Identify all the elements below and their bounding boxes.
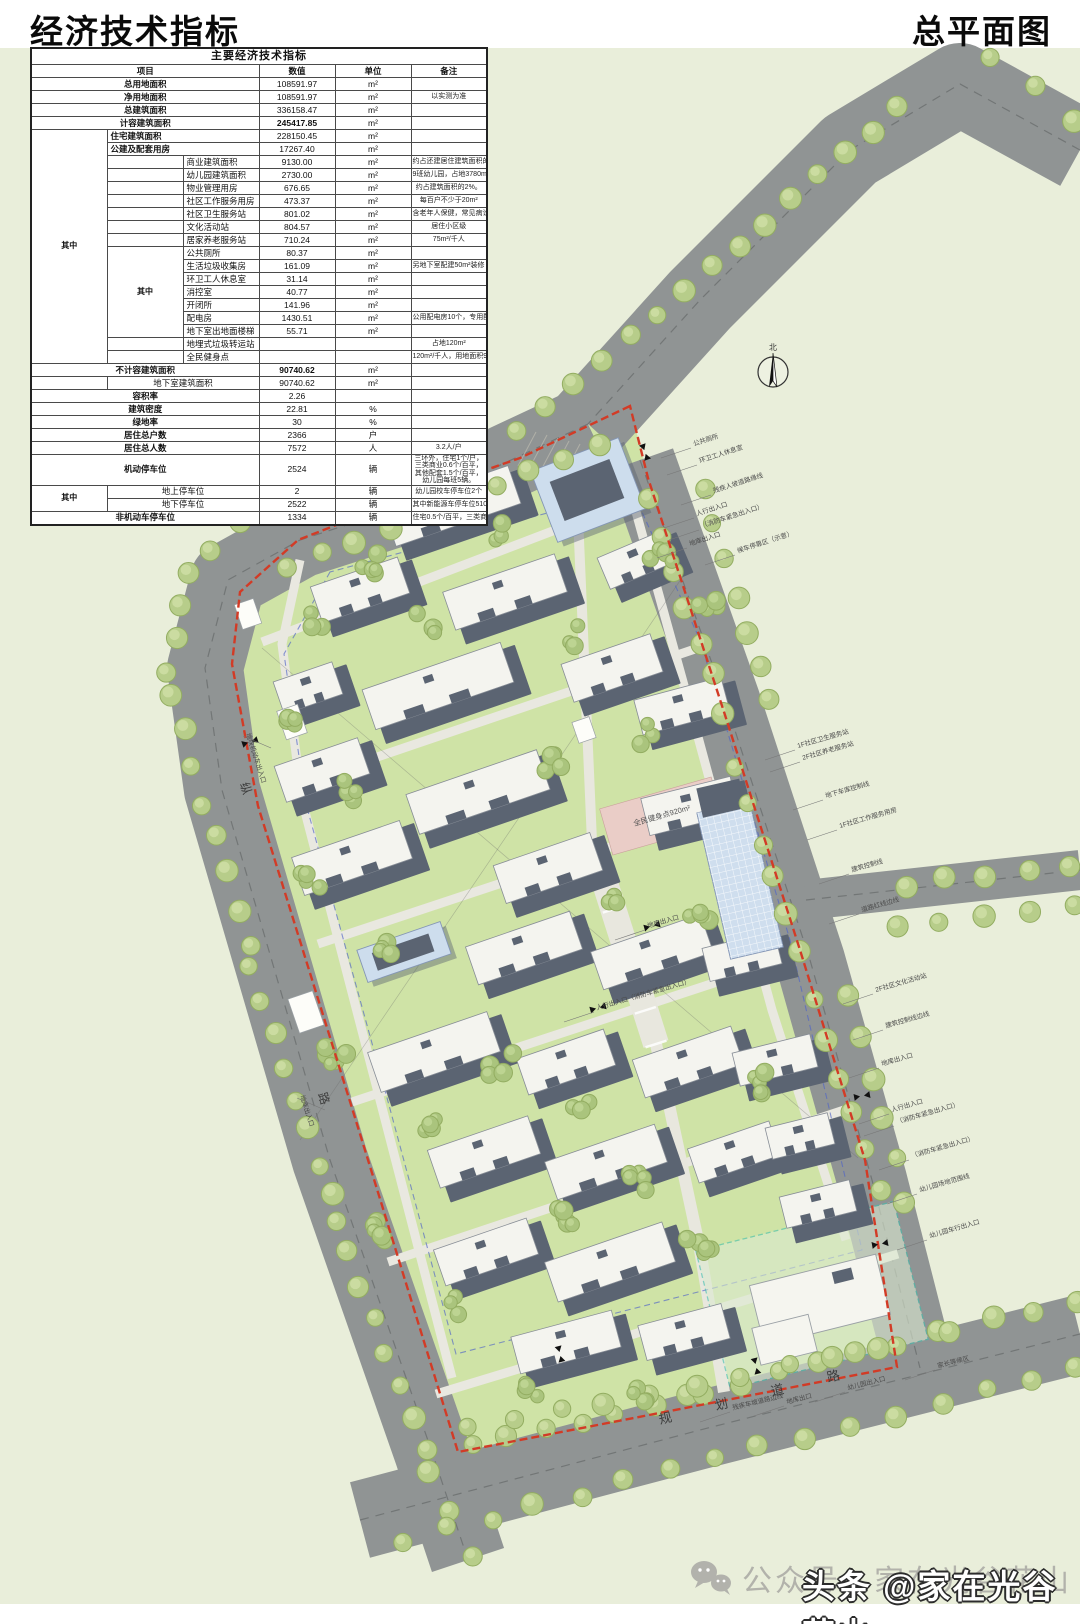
item-unit: m² bbox=[335, 312, 411, 325]
item-value: 2730.00 bbox=[259, 169, 335, 182]
item-value: 804.57 bbox=[259, 221, 335, 234]
table-cell bbox=[107, 169, 183, 182]
table-cell bbox=[107, 195, 183, 208]
item-remark bbox=[411, 104, 487, 117]
item-unit: 辆 bbox=[335, 485, 411, 498]
item-remark: 9班幼儿园，占地3780m² bbox=[411, 169, 487, 182]
among-label: 其中 bbox=[107, 247, 183, 338]
item-remark: 以实测为准 bbox=[411, 91, 487, 104]
item-value: 1334 bbox=[259, 511, 335, 525]
item-remark: 3.2人/户 bbox=[411, 442, 487, 455]
item-remark bbox=[411, 364, 487, 377]
item-name: 消控室 bbox=[183, 286, 259, 299]
item-name: 总用地面积 bbox=[31, 78, 259, 91]
col-header-unit: 单位 bbox=[335, 65, 411, 78]
item-name: 绿地率 bbox=[31, 416, 259, 429]
item-name: 公建及配套用房 bbox=[107, 143, 259, 156]
item-value: 1430.51 bbox=[259, 312, 335, 325]
item-remark: 占地120m² bbox=[411, 338, 487, 351]
item-name: 地下室建筑面积 bbox=[107, 377, 259, 390]
item-value: 336158.47 bbox=[259, 104, 335, 117]
watermark-overlay-text: 头条 @家在光谷花山 bbox=[802, 1560, 1080, 1624]
item-unit: 户 bbox=[335, 429, 411, 442]
item-remark: 每百户不少于20m² bbox=[411, 195, 487, 208]
table-cell bbox=[107, 234, 183, 247]
item-remark bbox=[411, 247, 487, 260]
item-name: 开闭所 bbox=[183, 299, 259, 312]
item-value bbox=[259, 351, 335, 364]
item-unit: m² bbox=[335, 234, 411, 247]
item-name: 配电房 bbox=[183, 312, 259, 325]
item-name: 机动停车位 bbox=[31, 455, 259, 486]
item-remark bbox=[411, 130, 487, 143]
table-row: 总用地面积108591.97m² bbox=[31, 78, 487, 91]
page-title-left: 经济技术指标 bbox=[30, 5, 240, 53]
item-remark bbox=[411, 429, 487, 442]
item-unit: m² bbox=[335, 325, 411, 338]
indicator-table: 主要经济技术指标项目数值单位备注总用地面积108591.97m²净用地面积108… bbox=[30, 47, 488, 526]
item-unit: m² bbox=[335, 208, 411, 221]
item-unit: m² bbox=[335, 273, 411, 286]
table-cell bbox=[107, 208, 183, 221]
table-row: 容积率2.26 bbox=[31, 390, 487, 403]
item-name: 生活垃圾收集房 bbox=[183, 260, 259, 273]
item-name: 全民健身点 bbox=[183, 351, 259, 364]
item-value: 2366 bbox=[259, 429, 335, 442]
item-unit bbox=[335, 338, 411, 351]
item-value: 7572 bbox=[259, 442, 335, 455]
table-cell bbox=[107, 182, 183, 195]
item-remark: 住宅0.5个/百平，三类商业1.5个/百平，其他配套1.5个/百平 bbox=[411, 511, 487, 525]
item-value: 710.24 bbox=[259, 234, 335, 247]
item-value: 108591.97 bbox=[259, 91, 335, 104]
item-remark bbox=[411, 416, 487, 429]
item-unit: % bbox=[335, 416, 411, 429]
item-unit: % bbox=[335, 403, 411, 416]
item-remark bbox=[411, 390, 487, 403]
item-unit: m² bbox=[335, 247, 411, 260]
item-unit: 辆 bbox=[335, 498, 411, 511]
table-row: 其中地上停车位2辆幼儿园校车停车位2个 bbox=[31, 485, 487, 498]
table-row: 非机动车停车位1334辆住宅0.5个/百平，三类商业1.5个/百平，其他配套1.… bbox=[31, 511, 487, 525]
table-cell bbox=[107, 338, 183, 351]
item-name: 非机动车停车位 bbox=[31, 511, 259, 525]
item-value: 2 bbox=[259, 485, 335, 498]
item-name: 居住总人数 bbox=[31, 442, 259, 455]
item-value: 80.37 bbox=[259, 247, 335, 260]
item-unit: m² bbox=[335, 143, 411, 156]
item-remark: 另地下室配建50m²装修（大件）垃圾收集房 bbox=[411, 260, 487, 273]
item-remark bbox=[411, 143, 487, 156]
item-value: 22.81 bbox=[259, 403, 335, 416]
item-value bbox=[259, 338, 335, 351]
item-name: 容积率 bbox=[31, 390, 259, 403]
item-name: 社区卫生服务站 bbox=[183, 208, 259, 221]
item-value: 17267.40 bbox=[259, 143, 335, 156]
item-name: 居住总户数 bbox=[31, 429, 259, 442]
item-value: 55.71 bbox=[259, 325, 335, 338]
item-unit: m² bbox=[335, 156, 411, 169]
wechat-icon bbox=[690, 1560, 734, 1596]
item-name: 住宅建筑面积 bbox=[107, 130, 259, 143]
item-unit: m² bbox=[335, 195, 411, 208]
item-unit: m² bbox=[335, 91, 411, 104]
item-name: 公共厕所 bbox=[183, 247, 259, 260]
item-remark bbox=[411, 325, 487, 338]
item-remark: 公用配电房10个，专用配电房2个 bbox=[411, 312, 487, 325]
item-unit: m² bbox=[335, 377, 411, 390]
col-header-value: 数值 bbox=[259, 65, 335, 78]
among-label: 其中 bbox=[31, 485, 107, 511]
table-row: 建筑密度22.81% bbox=[31, 403, 487, 416]
item-remark bbox=[411, 299, 487, 312]
table-row: 绿地率30% bbox=[31, 416, 487, 429]
item-unit: m² bbox=[335, 299, 411, 312]
col-header-remark: 备注 bbox=[411, 65, 487, 78]
item-unit bbox=[335, 351, 411, 364]
item-unit: m² bbox=[335, 169, 411, 182]
item-unit: m² bbox=[335, 260, 411, 273]
item-remark bbox=[411, 377, 487, 390]
item-remark bbox=[411, 273, 487, 286]
table-row: 不计容建筑面积90740.62m² bbox=[31, 364, 487, 377]
item-name: 居家养老服务站 bbox=[183, 234, 259, 247]
item-value: 90740.62 bbox=[259, 364, 335, 377]
item-name: 地下停车位 bbox=[107, 498, 259, 511]
col-header-item: 项目 bbox=[31, 65, 259, 78]
table-row: 其中住宅建筑面积228150.45m² bbox=[31, 130, 487, 143]
item-name: 地上停车位 bbox=[107, 485, 259, 498]
table-row: 居住总人数7572人3.2人/户 bbox=[31, 442, 487, 455]
item-unit: m² bbox=[335, 130, 411, 143]
item-remark bbox=[411, 286, 487, 299]
table-row: 计容建筑面积245417.85m² bbox=[31, 117, 487, 130]
item-remark: 含老年人保健，常见病诊疗，残疾人康复中心 bbox=[411, 208, 487, 221]
item-value: 473.37 bbox=[259, 195, 335, 208]
item-value: 30 bbox=[259, 416, 335, 429]
item-remark: 幼儿园校车停车位2个 bbox=[411, 485, 487, 498]
item-value: 801.02 bbox=[259, 208, 335, 221]
table-cell bbox=[107, 221, 183, 234]
item-remark: 120m²/千人，用地面积920m² bbox=[411, 351, 487, 364]
item-name: 环卫工人休息室 bbox=[183, 273, 259, 286]
item-remark: 约占还建居住建筑面积的4%，含2250m²超市型集贸市场 bbox=[411, 156, 487, 169]
among-label: 其中 bbox=[31, 130, 107, 364]
table-cell bbox=[107, 351, 183, 364]
item-remark bbox=[411, 403, 487, 416]
item-name: 不计容建筑面积 bbox=[31, 364, 259, 377]
svg-text:北: 北 bbox=[769, 343, 777, 352]
item-remark: 其中新能源车停车位510个 bbox=[411, 498, 487, 511]
table-cell bbox=[107, 156, 183, 169]
item-value: 31.14 bbox=[259, 273, 335, 286]
item-value: 2522 bbox=[259, 498, 335, 511]
table-row: 总建筑面积336158.47m² bbox=[31, 104, 487, 117]
item-value: 2.26 bbox=[259, 390, 335, 403]
item-value: 2524 bbox=[259, 455, 335, 486]
item-remark: 约占建筑面积的2%。 bbox=[411, 182, 487, 195]
item-remark bbox=[411, 78, 487, 91]
item-remark: 75m²/千人 bbox=[411, 234, 487, 247]
item-name: 地埋式垃圾转运站 bbox=[183, 338, 259, 351]
table-row: 机动停车位2524辆三环外，住宅1个/户，三类商业0.6个/百平，其他配套1.5… bbox=[31, 455, 487, 486]
item-unit: 辆 bbox=[335, 511, 411, 525]
item-value: 108591.97 bbox=[259, 78, 335, 91]
table-cell bbox=[31, 377, 107, 390]
item-name: 建筑密度 bbox=[31, 403, 259, 416]
item-unit: 人 bbox=[335, 442, 411, 455]
table-row: 地下室建筑面积90740.62m² bbox=[31, 377, 487, 390]
item-unit bbox=[335, 390, 411, 403]
item-unit: m² bbox=[335, 117, 411, 130]
item-name: 计容建筑面积 bbox=[31, 117, 259, 130]
item-remark: 三环外，住宅1个/户，三类商业0.6个/百平，其他配套1.5个/百平，幼儿园每班… bbox=[411, 455, 487, 486]
item-name: 商业建筑面积 bbox=[183, 156, 259, 169]
item-name: 文化活动站 bbox=[183, 221, 259, 234]
item-name: 地下室出地面楼梯 bbox=[183, 325, 259, 338]
item-unit: 辆 bbox=[335, 455, 411, 486]
item-remark bbox=[411, 117, 487, 130]
item-value: 245417.85 bbox=[259, 117, 335, 130]
item-value: 228150.45 bbox=[259, 130, 335, 143]
item-value: 141.96 bbox=[259, 299, 335, 312]
item-name: 物业管理用房 bbox=[183, 182, 259, 195]
table-row: 居住总户数2366户 bbox=[31, 429, 487, 442]
item-name: 净用地面积 bbox=[31, 91, 259, 104]
table-row: 净用地面积108591.97m²以实测为准 bbox=[31, 91, 487, 104]
item-value: 9130.00 bbox=[259, 156, 335, 169]
item-value: 40.77 bbox=[259, 286, 335, 299]
item-value: 90740.62 bbox=[259, 377, 335, 390]
item-value: 676.65 bbox=[259, 182, 335, 195]
item-name: 幼儿园建筑面积 bbox=[183, 169, 259, 182]
item-name: 总建筑面积 bbox=[31, 104, 259, 117]
item-unit: m² bbox=[335, 182, 411, 195]
item-unit: m² bbox=[335, 104, 411, 117]
item-unit: m² bbox=[335, 78, 411, 91]
item-value: 161.09 bbox=[259, 260, 335, 273]
plan-sheet: 北全民健身点920m²公共厕所环卫工人休息室残疾人坡道路缘线人行出入口（消防车紧… bbox=[0, 0, 1080, 1624]
item-remark: 居住小区级 bbox=[411, 221, 487, 234]
item-name: 社区工作服务用房 bbox=[183, 195, 259, 208]
item-unit: m² bbox=[335, 221, 411, 234]
page-title-right: 总平面图 bbox=[912, 5, 1052, 53]
item-unit: m² bbox=[335, 364, 411, 377]
item-unit: m² bbox=[335, 286, 411, 299]
